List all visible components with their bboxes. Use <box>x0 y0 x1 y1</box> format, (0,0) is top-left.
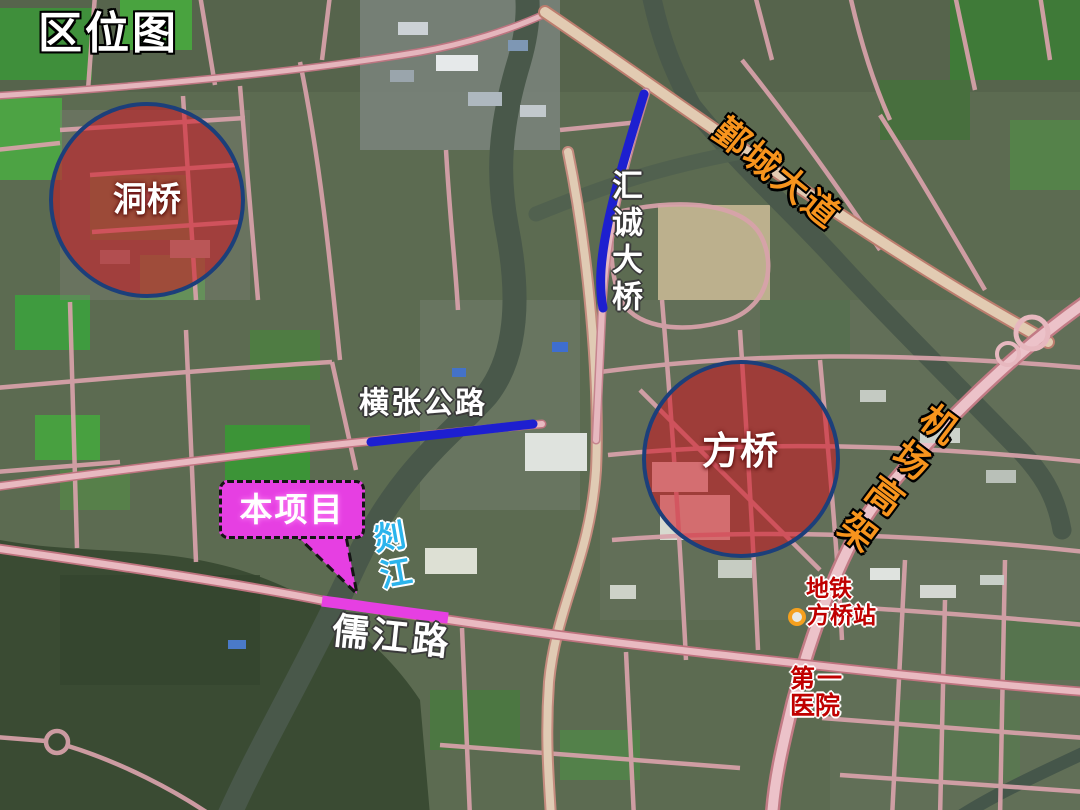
satellite-basemap <box>0 0 1080 810</box>
map-title: 区位图 <box>38 12 179 56</box>
dongqiao-region-label: 洞桥 <box>113 183 181 217</box>
project-callout-label: 本项目 <box>240 493 345 526</box>
location-map: 区位图 洞桥 方桥 鄞城大道 机场高架 汇诚大桥 横张公路 本项目 剡江 儒江路… <box>0 0 1080 810</box>
hengzhang-highway-label: 横张公路 <box>359 389 487 419</box>
first-hospital-label-line2: 医院 <box>790 694 840 719</box>
first-hospital-label-line1: 第一 <box>790 667 844 692</box>
metro-station-marker <box>790 610 804 624</box>
metro-station-label-line2: 方桥站 <box>807 604 876 627</box>
huicheng-bridge-label: 汇诚大桥 <box>609 169 640 317</box>
metro-station-label-line1: 地铁 <box>806 577 852 600</box>
project-callout: 本项目 <box>219 480 365 539</box>
fangqiao-region-label: 方桥 <box>702 433 778 471</box>
